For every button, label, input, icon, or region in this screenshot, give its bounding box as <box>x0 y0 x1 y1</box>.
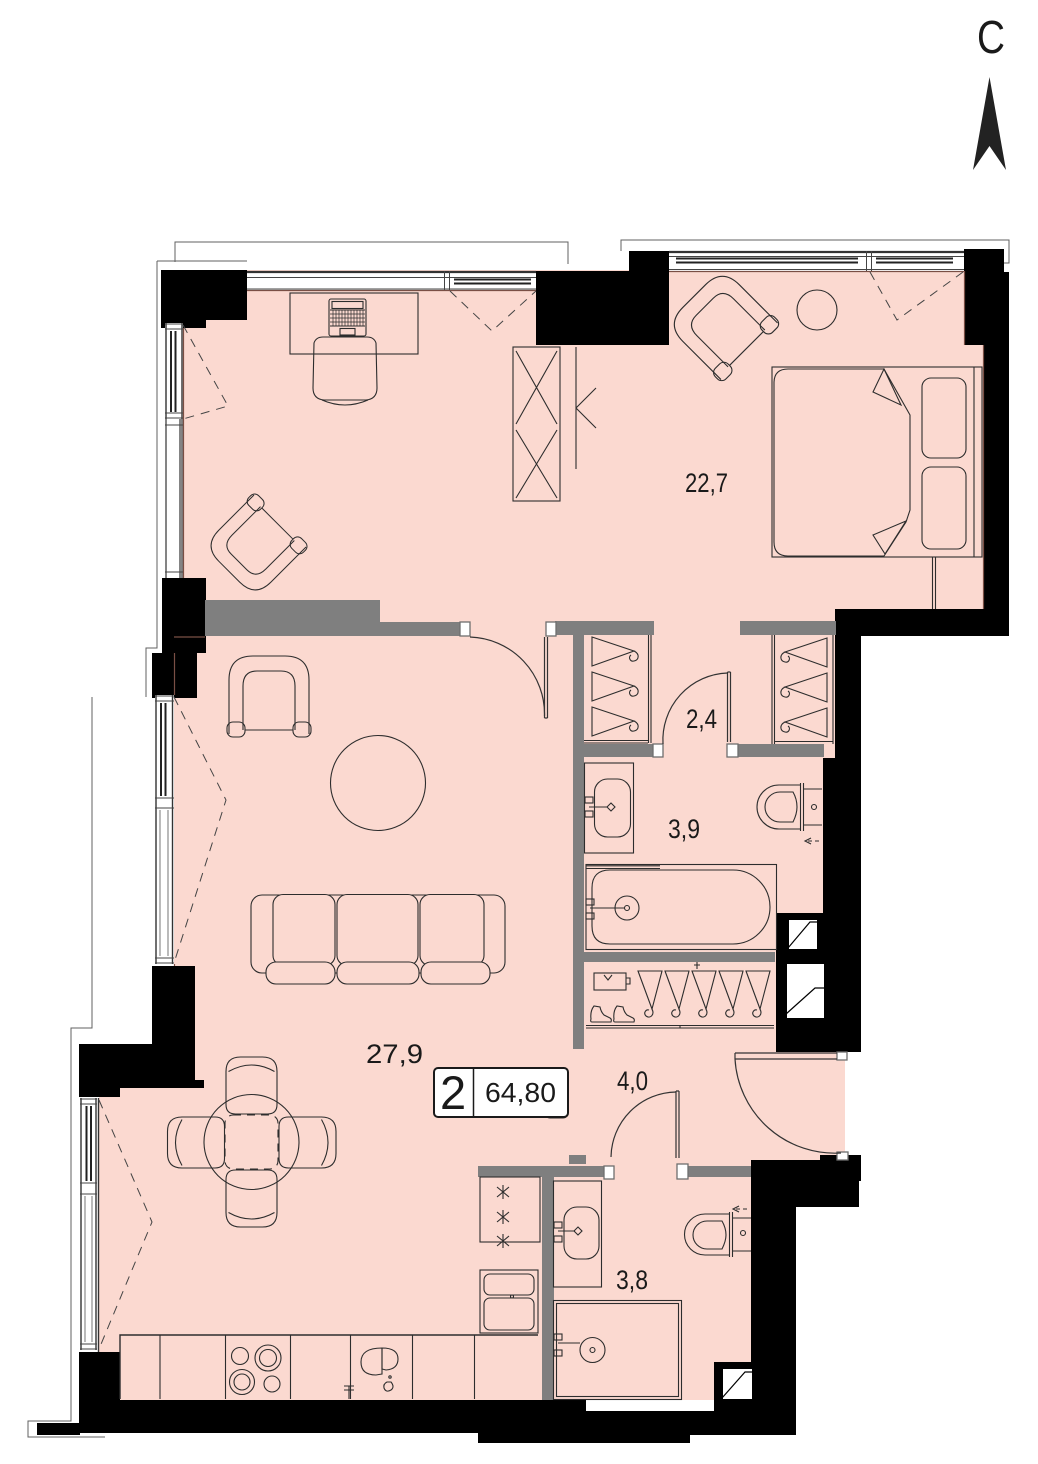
svg-text:3,8: 3,8 <box>616 1265 648 1295</box>
svg-text:2,4: 2,4 <box>686 704 717 734</box>
svg-text:2: 2 <box>440 1066 466 1119</box>
svg-text:4,0: 4,0 <box>617 1066 648 1096</box>
svg-text:64,80: 64,80 <box>485 1077 556 1108</box>
svg-text:22,7: 22,7 <box>685 468 728 498</box>
svg-text:3,9: 3,9 <box>668 814 700 844</box>
svg-text:С: С <box>977 11 1005 63</box>
svg-text:27,9: 27,9 <box>366 1039 423 1069</box>
